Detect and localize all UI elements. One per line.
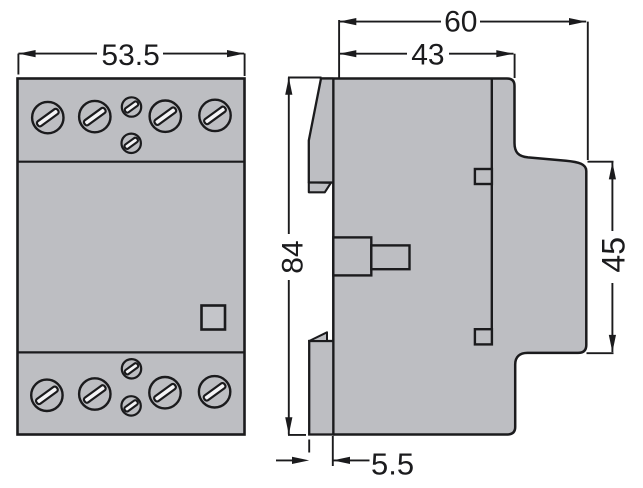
svg-text:45: 45 xyxy=(595,237,631,273)
svg-text:60: 60 xyxy=(444,5,477,38)
svg-text:84: 84 xyxy=(277,240,310,273)
svg-text:43: 43 xyxy=(411,38,444,71)
svg-text:5.5: 5.5 xyxy=(371,446,414,481)
svg-text:53.5: 53.5 xyxy=(101,39,159,72)
